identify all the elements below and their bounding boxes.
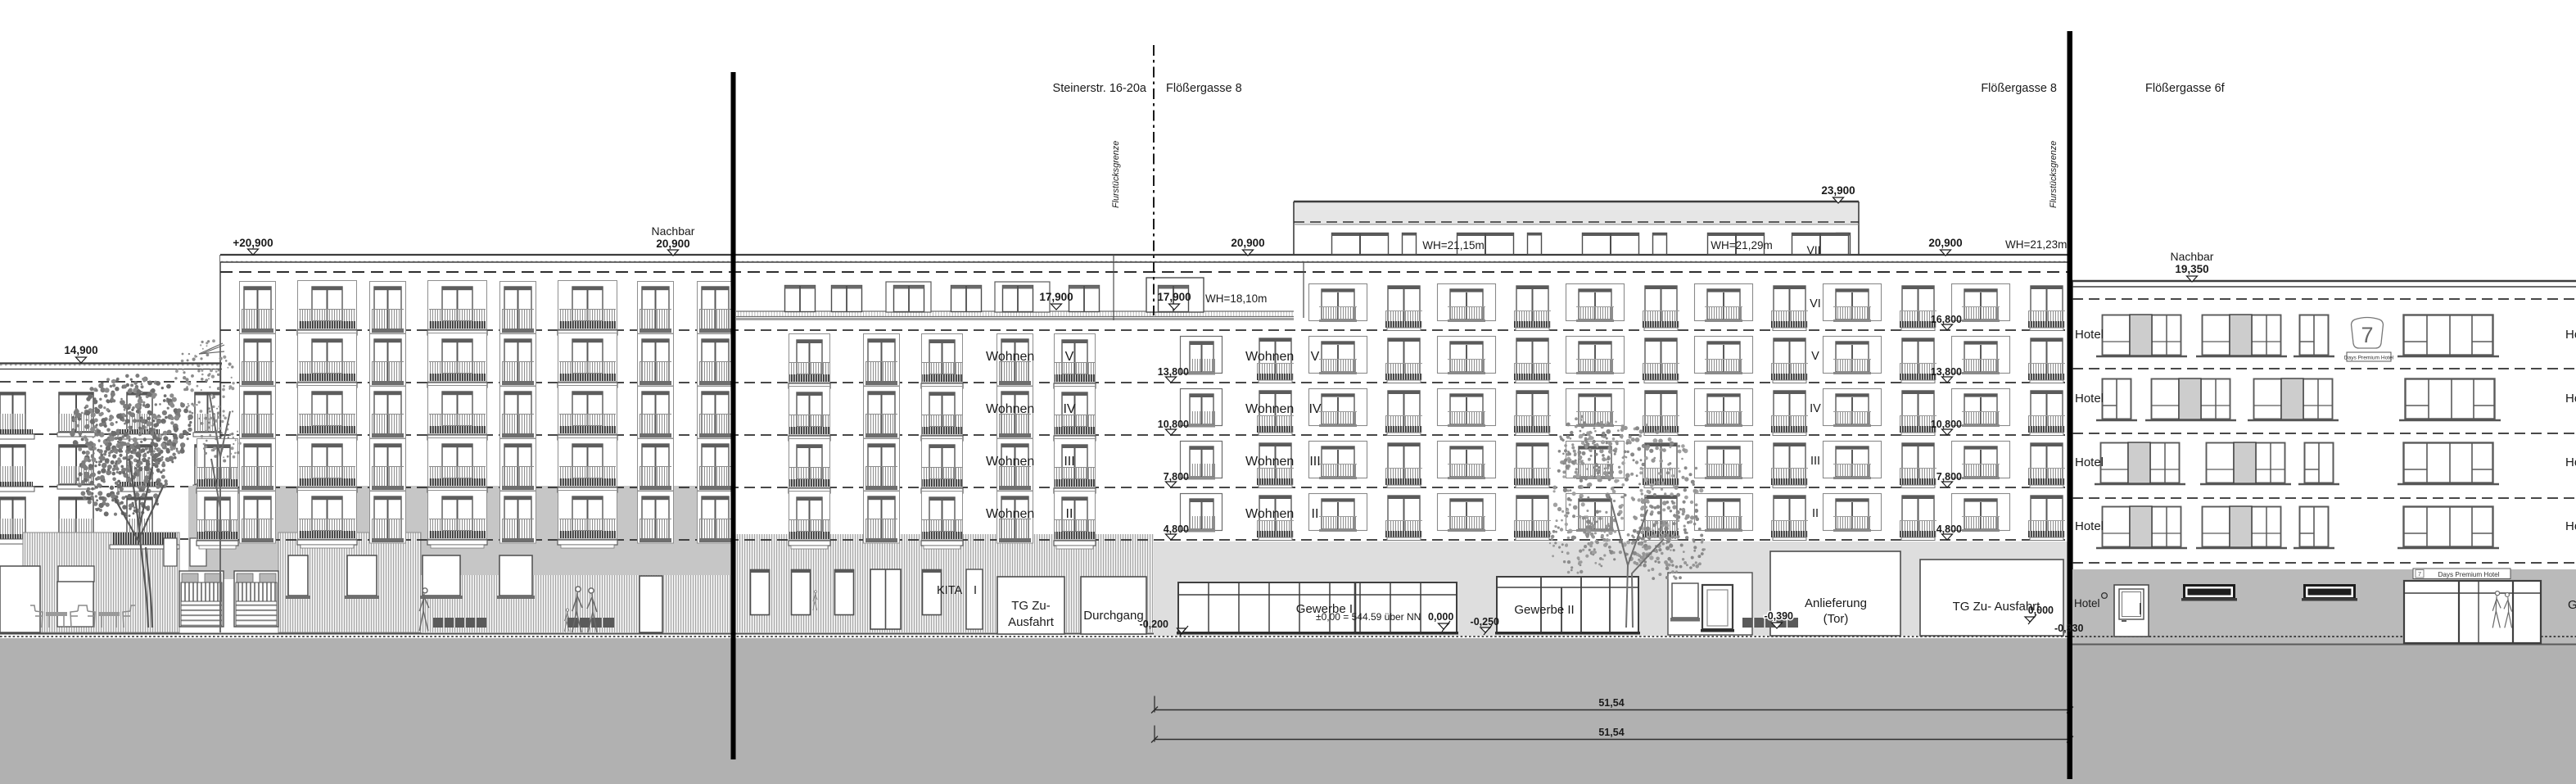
svg-text:7: 7	[2418, 570, 2421, 578]
svg-text:VII: VII	[1806, 243, 1820, 256]
svg-text:Hotel: Hotel	[2565, 392, 2576, 406]
svg-text:17,900: 17,900	[1039, 291, 1073, 303]
svg-text:Hotel: Hotel	[2075, 392, 2104, 406]
svg-text:Flößergasse 8: Flößergasse 8	[1981, 82, 2057, 95]
svg-text:Wohnen: Wohnen	[1245, 455, 1294, 469]
svg-text:WH=21,15m: WH=21,15m	[1422, 239, 1484, 252]
svg-text:13,800: 13,800	[1931, 366, 1962, 378]
svg-text:IV: IV	[1308, 402, 1321, 416]
svg-text:-0,330: -0,330	[2054, 623, 2083, 634]
svg-text:Days Premium Hotel: Days Premium Hotel	[2344, 356, 2394, 361]
svg-text:Gewerbe II: Gewerbe II	[1514, 603, 1574, 617]
svg-text:Nachbar: Nachbar	[652, 224, 695, 238]
svg-text:20,900: 20,900	[1231, 237, 1264, 249]
svg-text:51,54: 51,54	[1598, 697, 1624, 709]
svg-text:Anlieferung: Anlieferung	[1805, 596, 1867, 610]
svg-text:10,800: 10,800	[1931, 419, 1962, 430]
svg-text:10,800: 10,800	[1158, 419, 1189, 430]
svg-text:-0,250: -0,250	[1471, 616, 1499, 628]
svg-text:23,900: 23,900	[1821, 184, 1855, 197]
svg-text:20,900: 20,900	[1928, 237, 1962, 249]
svg-text:II: II	[1312, 507, 1319, 521]
svg-text:III: III	[1309, 455, 1320, 469]
svg-text:Hotel: Hotel	[2075, 519, 2104, 533]
svg-text:20,900: 20,900	[656, 238, 689, 250]
svg-text:Flößergasse 6f: Flößergasse 6f	[2145, 82, 2226, 95]
svg-text:Durchgang: Durchgang	[1083, 609, 1143, 623]
svg-text:Wohnen: Wohnen	[1245, 402, 1294, 416]
svg-text:WH=21,29m: WH=21,29m	[1711, 239, 1772, 252]
svg-text:WH=21,23m: WH=21,23m	[2005, 238, 2067, 251]
svg-text:Wohnen: Wohnen	[1245, 350, 1294, 364]
svg-text:7,800: 7,800	[1164, 471, 1189, 483]
svg-text:Hotel: Hotel	[2565, 455, 2576, 469]
svg-text:+20,900: +20,900	[233, 237, 273, 249]
svg-text:16,800: 16,800	[1931, 314, 1962, 325]
svg-text:V: V	[1811, 350, 1819, 363]
svg-text:Ausfahrt: Ausfahrt	[1008, 615, 1055, 629]
svg-text:Wohnen: Wohnen	[986, 350, 1034, 364]
svg-text:Hotel: Hotel	[2565, 519, 2576, 533]
svg-text:14,900: 14,900	[64, 344, 97, 356]
svg-text:(Tor): (Tor)	[1824, 612, 1849, 626]
svg-text:4,800: 4,800	[1164, 523, 1189, 535]
svg-text:I: I	[974, 584, 977, 597]
svg-text:Flurstücksgrenze: Flurstücksgrenze	[1111, 141, 1121, 208]
svg-text:III: III	[1810, 455, 1820, 468]
svg-text:II: II	[1812, 507, 1819, 520]
svg-text:Hotel: Hotel	[2075, 455, 2104, 469]
svg-text:Gewerbe: Gewerbe	[2568, 598, 2576, 612]
svg-text:-0,390: -0,390	[1765, 610, 1793, 622]
svg-text:Wohnen: Wohnen	[986, 455, 1034, 469]
svg-text:Nachbar: Nachbar	[2171, 250, 2214, 263]
svg-text:-0,200: -0,200	[1140, 619, 1168, 630]
svg-text:19,350: 19,350	[2175, 263, 2208, 275]
svg-text:Flurstücksgrenze: Flurstücksgrenze	[2049, 141, 2059, 208]
svg-text:WH=18,10m: WH=18,10m	[1205, 292, 1267, 305]
svg-text:Gewerbe I: Gewerbe I	[1296, 602, 1353, 616]
svg-text:Hotel: Hotel	[2565, 328, 2576, 342]
svg-text:Wohnen: Wohnen	[986, 507, 1034, 521]
svg-text:Wohnen: Wohnen	[986, 402, 1034, 416]
svg-text:7: 7	[2361, 323, 2373, 347]
svg-text:17,900: 17,900	[1157, 291, 1191, 303]
svg-text:4,800: 4,800	[1937, 523, 1962, 535]
svg-text:III: III	[1064, 455, 1074, 469]
svg-text:13,800: 13,800	[1158, 366, 1189, 378]
svg-text:Flößergasse 8: Flößergasse 8	[1166, 82, 1242, 95]
svg-text:Days Premium Hotel: Days Premium Hotel	[2438, 571, 2499, 578]
svg-text:51,54: 51,54	[1598, 727, 1624, 738]
svg-text:Wohnen: Wohnen	[1245, 507, 1294, 521]
svg-text:IV: IV	[1810, 402, 1821, 415]
svg-text:Hotel: Hotel	[2075, 328, 2104, 342]
svg-text:V: V	[1065, 350, 1074, 364]
svg-text:VI: VI	[1810, 297, 1821, 310]
svg-text:Hotel: Hotel	[2074, 597, 2100, 610]
svg-text:V: V	[1311, 350, 1320, 364]
svg-text:Steinerstr. 16-20a: Steinerstr. 16-20a	[1053, 82, 1147, 95]
svg-text:TG Zu- Ausfahrt: TG Zu- Ausfahrt	[1953, 600, 2041, 614]
svg-text:7,800: 7,800	[1937, 471, 1962, 483]
svg-text:TG Zu-: TG Zu-	[1011, 599, 1051, 613]
svg-text:IV: IV	[1063, 402, 1075, 416]
svg-text:KITA: KITA	[937, 584, 962, 597]
svg-text:II: II	[1066, 507, 1073, 521]
